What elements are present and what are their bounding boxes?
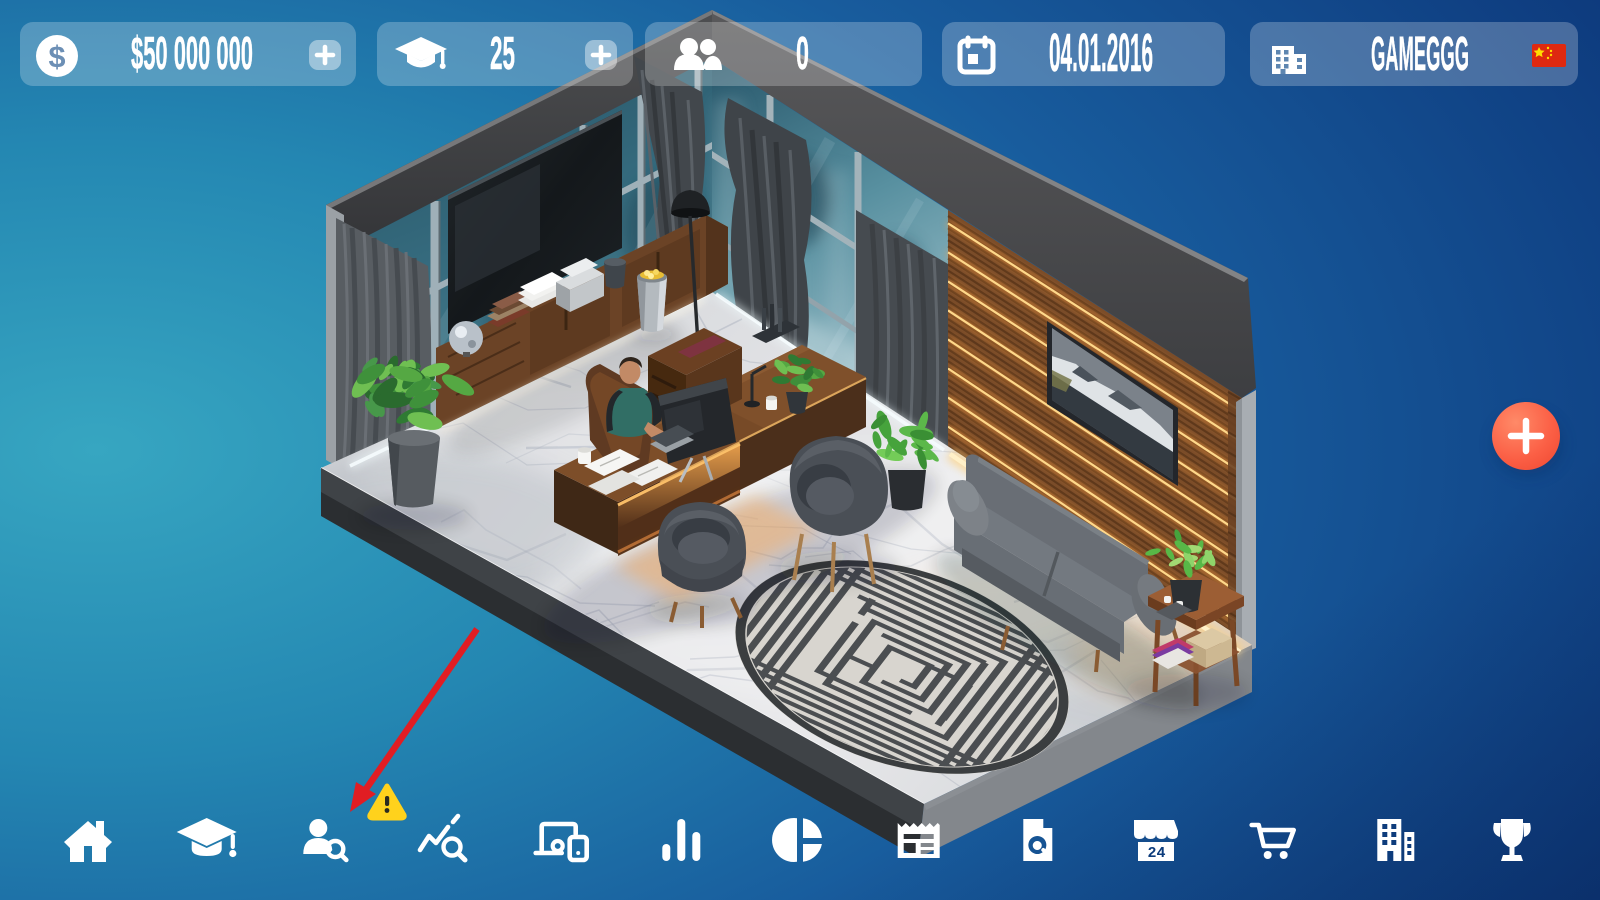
svg-text:$50 000 000: $50 000 000 (131, 27, 253, 79)
svg-text:24: 24 (1147, 845, 1165, 862)
svg-text:$: $ (49, 39, 66, 74)
svg-text:0: 0 (796, 27, 809, 79)
svg-text:04.01.2016: 04.01.2016 (1049, 23, 1153, 83)
svg-text:25: 25 (490, 27, 515, 79)
svg-text:GAMEGGG: GAMEGGG (1371, 28, 1469, 81)
